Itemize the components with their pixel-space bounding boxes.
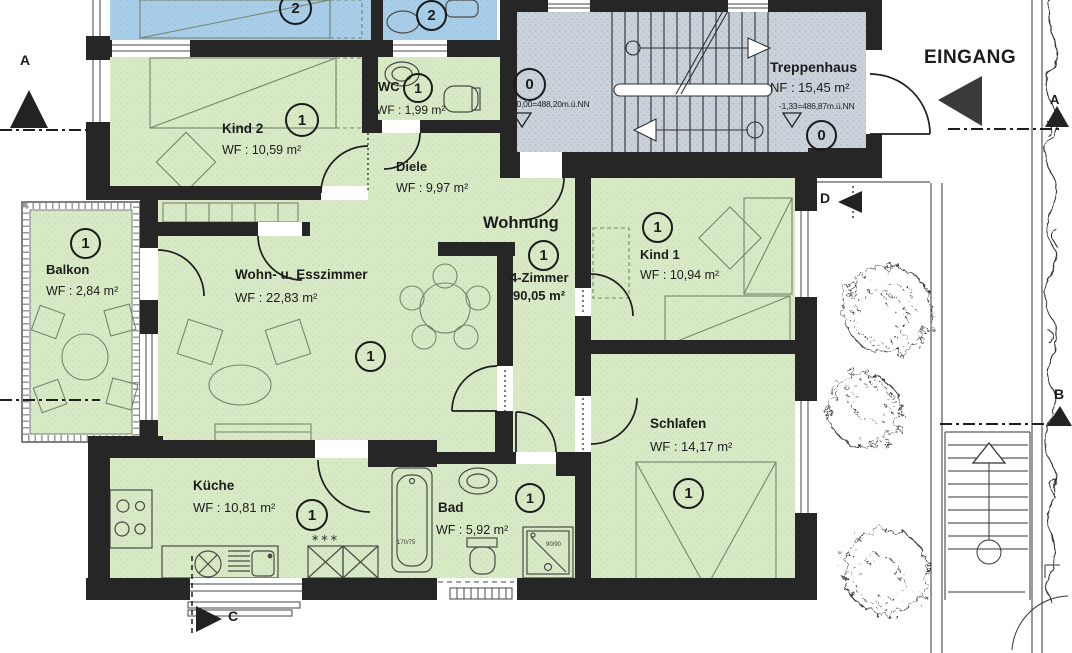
- wohnzimmer-label: Wohn- u. Esszimmer: [235, 268, 368, 282]
- apartment-type: 4-Zimmer: [510, 271, 569, 284]
- floor-plan: Kind 2 WF : 10,59 m² 1 WC WF : 1,99 m² 1…: [0, 0, 1072, 653]
- kind1-label: Kind 1: [640, 248, 680, 261]
- diele-label: Diele: [396, 160, 427, 173]
- bad-area: WF : 5,92 m²: [436, 524, 508, 537]
- treppenhaus-badge-upper: 0: [513, 68, 546, 101]
- marker-a-right-triangle: [1045, 106, 1069, 127]
- bad-badge: 1: [515, 483, 545, 513]
- schlafen-label: Schlafen: [650, 417, 706, 431]
- marker-d: D: [820, 190, 830, 206]
- marker-b-triangle: [1047, 406, 1072, 426]
- vegetation-line: [1045, 0, 1058, 603]
- marker-b: B: [1054, 386, 1064, 402]
- kind2-area: WF : 10,59 m²: [222, 144, 301, 157]
- apartment-badge: 1: [528, 240, 559, 271]
- treppenhaus-label: Treppenhaus: [770, 60, 857, 74]
- schlafen-area: WF : 14,17 m²: [650, 440, 732, 453]
- tub-size-label: 170/75: [397, 540, 415, 546]
- treppenhaus-area: NF : 15,45 m²: [770, 81, 849, 94]
- balkon-area: WF : 2,84 m²: [46, 285, 118, 298]
- elevation-ground-label: ±0,00=488,20m.ü.NN: [512, 99, 589, 109]
- freezer-stars: ∗∗∗: [311, 533, 339, 544]
- entrance-label: EINGANG: [924, 47, 1016, 69]
- wc-area: WF : 1,99 m²: [376, 104, 445, 116]
- marker-c: C: [228, 608, 238, 624]
- wohnzimmer-badge: 1: [355, 341, 386, 372]
- kueche-badge: 1: [296, 499, 328, 531]
- shower-size-label: 90/90: [546, 542, 561, 548]
- diele-area: WF : 9,97 m²: [396, 182, 468, 195]
- bush-top: [844, 266, 932, 354]
- wohnzimmer-area: WF : 22,83 m²: [235, 291, 317, 304]
- wc-label: WC: [378, 80, 400, 93]
- bush-bottom: [844, 530, 928, 614]
- marker-d-triangle: [838, 191, 862, 213]
- exterior-stairs: [945, 432, 1068, 650]
- marker-a-right: A: [1050, 92, 1059, 107]
- treppenhaus-badge-lower: 0: [806, 120, 837, 151]
- elevation-lower-label: -1,33=486,87m.ü.NN: [779, 101, 855, 111]
- kind1-area: WF : 10,94 m²: [640, 269, 719, 282]
- bush-middle: [828, 374, 900, 446]
- kueche-area: WF : 10,81 m²: [193, 501, 275, 514]
- apartment-title: Wohnung: [483, 215, 559, 232]
- kind1-badge: 1: [642, 212, 673, 243]
- apartment-total-area: 90,05 m²: [513, 289, 565, 302]
- wc-badge: 1: [403, 73, 433, 103]
- neighbor-bath-badge: 2: [416, 0, 447, 31]
- kueche-label: Küche: [193, 479, 234, 493]
- kind2-label: Kind 2: [222, 122, 263, 136]
- balkon-badge: 1: [70, 228, 101, 259]
- schlafen-badge: 1: [673, 478, 704, 509]
- marker-a-left-triangle: [10, 90, 48, 128]
- entrance-arrow: [938, 76, 982, 126]
- marker-a-left: A: [20, 52, 30, 68]
- bad-label: Bad: [438, 501, 464, 515]
- kind2-badge: 1: [285, 103, 319, 137]
- balkon-label: Balkon: [46, 263, 89, 276]
